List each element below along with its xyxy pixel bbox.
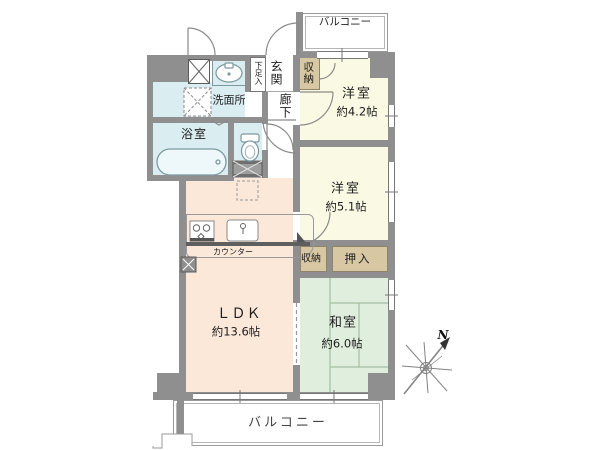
- room-toilet-area: [234, 123, 262, 160]
- shoe-cabinet-label: 下足入: [254, 61, 262, 85]
- japanese-size: 約6.0帖: [321, 337, 362, 350]
- wall-closet-divider: [327, 240, 332, 278]
- futon-closet-label: 押入: [345, 252, 372, 265]
- balcony-top-label: バルコニー: [319, 16, 371, 28]
- japanese-name: 和室: [329, 317, 357, 332]
- window-japanese-south: [300, 393, 368, 400]
- ldk-size: 約13.6帖: [212, 325, 261, 338]
- entrance-door-arc: [266, 23, 298, 55]
- washroom-label: 洗面所: [213, 95, 246, 108]
- bathroom-label: 浴室: [181, 128, 207, 142]
- window-ldk-south: [193, 393, 287, 400]
- compass-rose: [402, 337, 452, 394]
- compass-north-label: N: [438, 329, 449, 343]
- entrance-label: 玄関: [270, 60, 282, 86]
- western-b-size: 約5.1帖: [325, 200, 366, 213]
- wall-hall-east-d: [293, 365, 300, 392]
- toilet-door-arc: [267, 124, 293, 150]
- floor-plan: バルコニー 洋室 約4.2帖 洋室 約5.1帖 収納 玄関 下足入 廊下 洗面所…: [0, 0, 600, 450]
- wall-ldk-west: [179, 178, 186, 392]
- ldk-name: ＬＤＫ: [217, 306, 262, 322]
- entry-closet-label: 収納: [303, 62, 314, 85]
- wall-balcony-bottom-divider: [177, 400, 184, 435]
- western-a-name: 洋室: [342, 88, 372, 103]
- hall-ldk-door-arc: [263, 120, 296, 153]
- wall-east: [388, 52, 395, 397]
- window-western-b-east: [388, 162, 395, 222]
- window-japanese-east: [388, 280, 395, 310]
- japanese-opening: [293, 303, 300, 365]
- wall-washroom-bath: [147, 117, 262, 123]
- western-b-name: 洋室: [331, 183, 361, 198]
- window-western-a-east: [388, 105, 395, 127]
- hallway-label: 廊下: [279, 93, 291, 119]
- washstand-counter: [212, 59, 247, 86]
- wall-hall-east-b: [293, 125, 300, 212]
- wall-toilet-east-upper: [262, 92, 268, 124]
- wall-closet-japanese: [293, 272, 394, 278]
- living-closet-label: 収納: [301, 253, 321, 265]
- western-a-size: 約4.2帖: [336, 105, 377, 118]
- wall-pillar-western-a: [370, 55, 394, 78]
- wall-balcony-top-west: [296, 12, 303, 55]
- wall-bath-east: [228, 117, 234, 178]
- entrance-step-line: [266, 91, 293, 92]
- wall-pillar-southeast: [368, 373, 395, 397]
- pipe-space: [233, 161, 262, 177]
- balcony-bottom-label: バルコニー: [248, 417, 328, 432]
- window-western-a-top: [317, 51, 368, 59]
- wall-hall-east-a: [293, 55, 300, 92]
- wall-pillar-topleft: [150, 55, 188, 82]
- meterbox-door-arc: [188, 28, 215, 55]
- room-ldk-area: [186, 178, 293, 392]
- wall-toilet-east-lower: [262, 150, 268, 178]
- wall-western-a-b: [293, 140, 394, 147]
- meter-box: [188, 59, 210, 84]
- counter-label: カウンター: [213, 247, 253, 256]
- wall-westwing-bottom: [147, 175, 234, 181]
